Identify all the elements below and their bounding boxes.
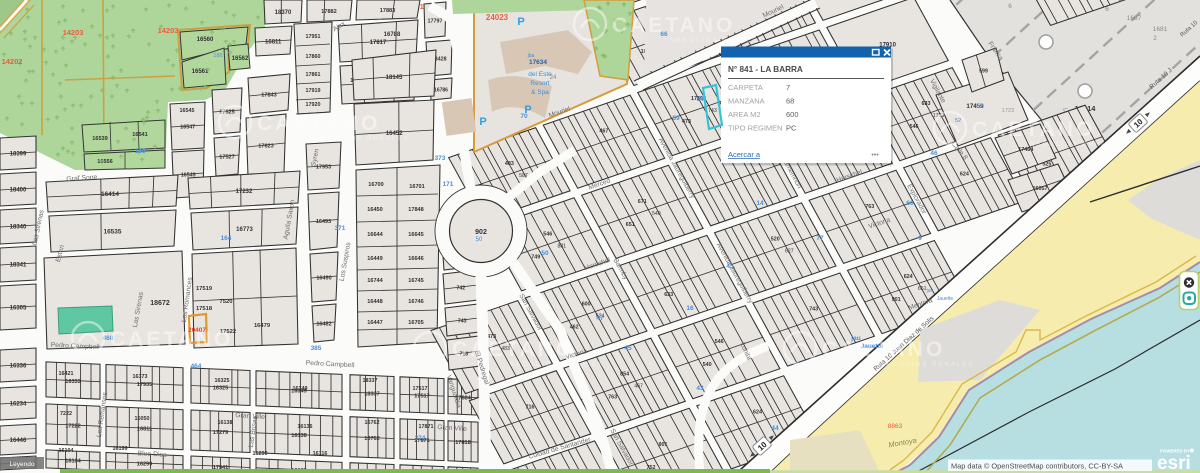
- svg-text:59: 59: [672, 115, 680, 122]
- svg-text:749: 749: [531, 254, 540, 260]
- svg-text:1687: 1687: [1127, 15, 1142, 22]
- svg-text:17527: 17527: [219, 155, 235, 161]
- svg-text:N° 841 - LA BARRA: N° 841 - LA BARRA: [728, 65, 803, 74]
- svg-text:651: 651: [918, 286, 927, 292]
- svg-text:16786: 16786: [434, 88, 448, 94]
- svg-text:16447: 16447: [367, 320, 383, 326]
- svg-text:17518: 17518: [196, 306, 213, 312]
- svg-text:jau: jau: [926, 288, 934, 294]
- svg-text:18370: 18370: [275, 10, 292, 16]
- svg-text:17519: 17519: [196, 286, 213, 292]
- svg-text:43: 43: [696, 385, 704, 392]
- svg-text:16116: 16116: [313, 451, 328, 457]
- svg-text:16645: 16645: [408, 232, 424, 238]
- svg-text:45: 45: [726, 263, 734, 270]
- svg-text:16138: 16138: [218, 420, 233, 426]
- svg-text:546: 546: [910, 124, 919, 130]
- svg-text:2: 2: [1153, 35, 1157, 42]
- svg-text:763: 763: [865, 204, 874, 210]
- svg-text:633: 633: [664, 292, 673, 298]
- svg-text:60: 60: [906, 200, 914, 207]
- svg-text:CAETANO: CAETANO: [612, 14, 735, 37]
- svg-text:16448: 16448: [367, 299, 383, 305]
- svg-text:77: 77: [816, 235, 824, 242]
- svg-text:16773: 16773: [236, 227, 253, 233]
- svg-text:CAETANO: CAETANO: [110, 328, 233, 351]
- svg-text:16762: 16762: [364, 436, 380, 442]
- svg-text:jba: jba: [527, 53, 535, 59]
- svg-text:7520: 7520: [220, 299, 233, 305]
- svg-text:671: 671: [638, 199, 647, 205]
- svg-text:NEGOCIOS RURALES: NEGOCIOS RURALES: [1030, 142, 1124, 148]
- svg-text:18337: 18337: [363, 378, 378, 384]
- svg-text:17623: 17623: [258, 144, 274, 150]
- svg-text:16138: 16138: [291, 433, 307, 439]
- svg-text:16057: 16057: [1033, 186, 1048, 192]
- svg-text:16349: 16349: [293, 386, 308, 392]
- svg-text:52: 52: [976, 103, 984, 110]
- svg-text:Leyendo: Leyendo: [10, 461, 35, 468]
- svg-text:18340: 18340: [10, 225, 27, 231]
- svg-text:14: 14: [756, 200, 764, 207]
- svg-text:16493: 16493: [316, 219, 331, 225]
- svg-text:17883: 17883: [380, 8, 396, 14]
- svg-text:68: 68: [786, 97, 794, 106]
- svg-text:742: 742: [456, 286, 465, 292]
- svg-text:17843: 17843: [261, 93, 277, 99]
- svg-text:16562: 16562: [232, 56, 249, 62]
- svg-text:8863: 8863: [888, 423, 903, 430]
- svg-text:17953: 17953: [316, 165, 331, 171]
- svg-text:763: 763: [608, 395, 617, 401]
- svg-text:464: 464: [191, 363, 202, 370]
- svg-text:52: 52: [955, 118, 961, 124]
- svg-text:16336: 16336: [10, 364, 27, 370]
- svg-text:546: 546: [715, 339, 724, 345]
- svg-text:16746: 16746: [408, 299, 424, 305]
- svg-text:17935: 17935: [137, 382, 153, 388]
- svg-text:16490: 16490: [316, 276, 331, 282]
- svg-text:16644: 16644: [367, 232, 383, 238]
- svg-text:64: 64: [697, 97, 704, 103]
- svg-text:24023: 24023: [486, 13, 509, 22]
- svg-text:16479: 16479: [254, 323, 271, 329]
- svg-text:540: 540: [703, 362, 712, 368]
- svg-text:374: 374: [415, 435, 426, 442]
- svg-text:P: P: [479, 116, 486, 128]
- svg-text:6: 6: [1105, 6, 1109, 13]
- svg-text:17848: 17848: [408, 207, 424, 213]
- svg-text:16541: 16541: [132, 132, 148, 138]
- svg-text:473: 473: [682, 119, 691, 125]
- svg-text:1723: 1723: [1002, 108, 1014, 114]
- svg-text:16701: 16701: [409, 184, 425, 190]
- svg-text:624: 624: [753, 409, 762, 415]
- svg-text:6: 6: [1008, 3, 1012, 10]
- svg-text:17279: 17279: [213, 430, 229, 436]
- svg-text:599: 599: [979, 69, 988, 75]
- svg-text:18672: 18672: [150, 300, 170, 307]
- svg-text:17232: 17232: [236, 189, 253, 195]
- svg-text:901: 901: [892, 297, 901, 303]
- svg-text:186: 186: [213, 53, 222, 59]
- svg-text:esri: esri: [1157, 453, 1191, 473]
- svg-text:17871: 17871: [419, 424, 434, 430]
- svg-text:600: 600: [786, 110, 799, 119]
- svg-text:901: 901: [659, 442, 668, 448]
- svg-text:17919: 17919: [306, 88, 321, 94]
- svg-text:18341: 18341: [10, 263, 27, 269]
- svg-text:16745: 16745: [408, 278, 424, 284]
- svg-text:14203: 14203: [158, 26, 179, 35]
- svg-text:16414: 16414: [101, 191, 119, 198]
- svg-text:520: 520: [771, 236, 780, 242]
- svg-text:CAETANO: CAETANO: [452, 338, 575, 361]
- svg-text:NEGOCIOS RURALES: NEGOCIOS RURALES: [168, 352, 262, 358]
- svg-text:902: 902: [475, 229, 487, 236]
- svg-text:17517: 17517: [414, 394, 430, 400]
- svg-text:44: 44: [771, 425, 779, 432]
- svg-text:16325: 16325: [213, 385, 229, 391]
- svg-text:16556: 16556: [97, 159, 113, 165]
- svg-text:854: 854: [620, 372, 629, 378]
- svg-text:& Spa: & Spa: [531, 89, 549, 96]
- svg-text:16705: 16705: [408, 320, 424, 326]
- svg-text:16421: 16421: [59, 371, 74, 377]
- svg-text:467: 467: [599, 129, 608, 135]
- svg-text:16482: 16482: [316, 322, 331, 328]
- svg-text:16234: 16234: [10, 402, 27, 408]
- svg-text:CARPETA: CARPETA: [728, 83, 763, 92]
- svg-text:16199: 16199: [113, 446, 128, 452]
- svg-text:164: 164: [221, 235, 232, 242]
- svg-text:716: 716: [526, 404, 535, 410]
- svg-text:624: 624: [904, 274, 913, 280]
- svg-text:373: 373: [435, 155, 446, 162]
- svg-text:7: 7: [786, 83, 790, 92]
- svg-text:171: 171: [443, 181, 454, 188]
- svg-text:9: 9: [918, 235, 922, 242]
- svg-text:16539: 16539: [92, 136, 108, 142]
- svg-text:600: 600: [582, 302, 591, 308]
- svg-text:CAETANO: CAETANO: [972, 118, 1095, 141]
- svg-text:16762: 16762: [365, 420, 380, 426]
- svg-text:14202: 14202: [2, 57, 23, 66]
- svg-text:24: 24: [550, 75, 557, 81]
- svg-text:16646: 16646: [408, 256, 424, 262]
- svg-text:14203: 14203: [63, 28, 84, 37]
- svg-text:CAETANO: CAETANO: [257, 112, 380, 135]
- svg-text:16299: 16299: [137, 462, 153, 468]
- svg-text:16305: 16305: [10, 306, 27, 312]
- svg-text:MANZANA: MANZANA: [728, 97, 765, 106]
- svg-text:462: 462: [570, 325, 579, 331]
- svg-text:16136: 16136: [298, 424, 313, 430]
- svg-text:17818: 17818: [455, 440, 471, 446]
- svg-text:16788: 16788: [384, 32, 401, 38]
- svg-text:47: 47: [596, 315, 604, 322]
- svg-text:70: 70: [520, 113, 528, 120]
- svg-text:•••: •••: [871, 152, 879, 159]
- svg-text:16535: 16535: [103, 229, 121, 236]
- svg-text:16560: 16560: [197, 37, 214, 43]
- svg-text:546: 546: [543, 231, 552, 237]
- svg-text:16700: 16700: [368, 182, 384, 188]
- svg-text:186: 186: [135, 148, 146, 155]
- svg-text:Acercar a: Acercar a: [728, 150, 761, 159]
- svg-text:18399: 18399: [10, 152, 27, 158]
- svg-text:743: 743: [708, 108, 717, 114]
- svg-text:PC: PC: [786, 124, 797, 133]
- svg-text:Resort: Resort: [530, 80, 549, 87]
- svg-text:NEGOCIOS RURALES: NEGOCIOS RURALES: [510, 362, 604, 368]
- svg-text:16104: 16104: [65, 459, 81, 465]
- svg-text:16547: 16547: [180, 125, 195, 131]
- svg-text:540: 540: [652, 211, 661, 217]
- svg-text:18337: 18337: [364, 392, 380, 398]
- svg-text:46: 46: [930, 150, 938, 157]
- svg-text:17951: 17951: [306, 34, 321, 40]
- svg-text:17222: 17222: [65, 424, 81, 430]
- svg-text:16744: 16744: [367, 278, 383, 284]
- svg-text:17882: 17882: [321, 9, 337, 15]
- svg-text:Map data © OpenStreetMap contr: Map data © OpenStreetMap contributors, C…: [951, 461, 1123, 470]
- svg-text:16446: 16446: [10, 438, 27, 444]
- svg-text:17817: 17817: [370, 40, 387, 46]
- svg-text:16450: 16450: [367, 207, 383, 213]
- svg-text:17517: 17517: [413, 386, 428, 392]
- svg-text:881: 881: [557, 243, 566, 249]
- svg-text:NEGOCIOS RURALES: NEGOCIOS RURALES: [880, 362, 974, 368]
- svg-text:18400: 18400: [10, 188, 27, 194]
- svg-text:16299: 16299: [253, 451, 268, 457]
- svg-text:AREA M2: AREA M2: [728, 110, 761, 119]
- svg-text:385: 385: [311, 345, 322, 352]
- svg-text:16373: 16373: [133, 374, 148, 380]
- svg-text:633: 633: [922, 101, 931, 107]
- svg-text:TIPO REGIMEN: TIPO REGIMEN: [728, 124, 783, 133]
- svg-text:del Este: del Este: [528, 71, 552, 78]
- svg-text:17861: 17861: [306, 72, 321, 78]
- svg-text:50: 50: [476, 237, 483, 243]
- svg-text:17634: 17634: [529, 59, 547, 66]
- svg-text:15050: 15050: [135, 416, 150, 422]
- svg-text:NEGOCIOS RURALES: NEGOCIOS RURALES: [670, 38, 764, 44]
- svg-text:16811: 16811: [137, 427, 152, 433]
- svg-text:1681: 1681: [1153, 26, 1168, 33]
- svg-text:627: 627: [785, 248, 794, 254]
- svg-text:16: 16: [686, 305, 694, 312]
- svg-text:18145: 18145: [386, 75, 403, 81]
- svg-text:16545: 16545: [180, 108, 195, 114]
- svg-text:CAETANO: CAETANO: [822, 338, 945, 361]
- svg-text:17797: 17797: [428, 19, 443, 25]
- svg-text:483: 483: [505, 161, 514, 167]
- svg-text:50: 50: [541, 250, 549, 257]
- svg-text:467: 467: [634, 384, 643, 390]
- svg-text:743: 743: [458, 319, 467, 325]
- svg-text:P: P: [517, 16, 524, 28]
- svg-text:651: 651: [626, 222, 635, 228]
- svg-text:NEGOCIOS RURALES: NEGOCIOS RURALES: [315, 136, 409, 142]
- svg-text:16449: 16449: [367, 256, 383, 262]
- svg-text:624: 624: [960, 171, 969, 177]
- svg-text:16104: 16104: [59, 448, 74, 454]
- svg-text:743: 743: [809, 307, 818, 313]
- svg-text:16811: 16811: [265, 40, 282, 46]
- svg-text:45: 45: [624, 345, 632, 352]
- svg-text:17860: 17860: [306, 54, 321, 60]
- svg-text:371: 371: [335, 225, 346, 232]
- svg-text:17920: 17920: [306, 102, 321, 108]
- svg-text:16333: 16333: [65, 379, 81, 385]
- svg-text:Jauette: Jauette: [937, 296, 954, 302]
- svg-text:16325: 16325: [215, 378, 230, 384]
- svg-text:7222: 7222: [60, 411, 72, 417]
